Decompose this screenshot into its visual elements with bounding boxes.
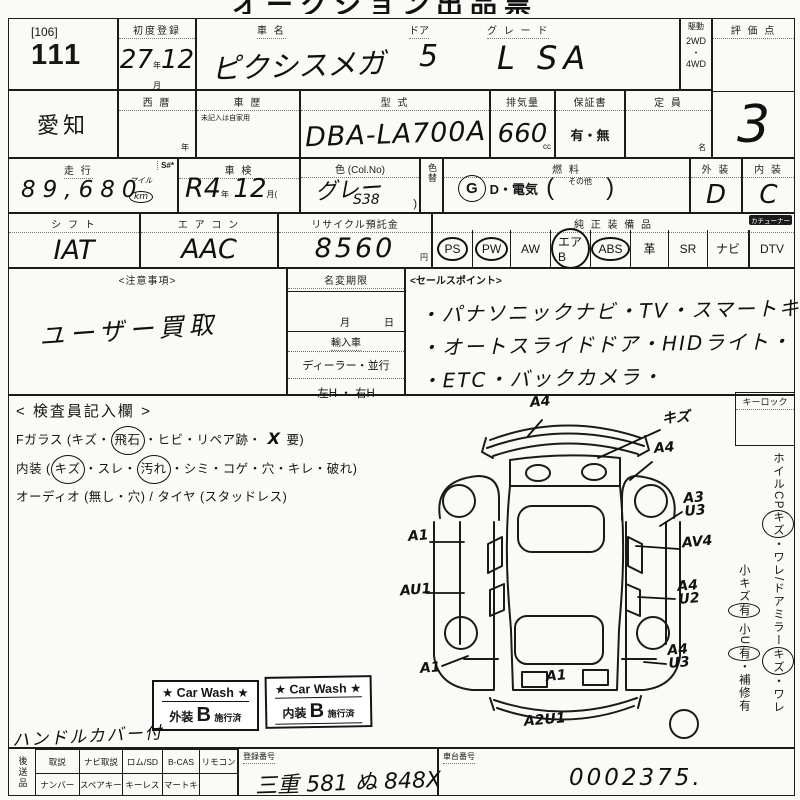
damage-marker: A3 U3 (683, 491, 706, 519)
inspection-expiry-cell: 車 検 R4年 12月( (178, 158, 300, 213)
equipment-7: SR (668, 230, 707, 267)
damage-marker: A2U1 (524, 712, 567, 729)
aircon-cell: エ ア コ ン AAC (140, 213, 278, 268)
drive-type-cell: 駆動 2WD ・ 4WD (680, 18, 712, 90)
first-registration-cell: 初度登録 27年12月 (118, 18, 196, 90)
damage-marker: A1 (419, 661, 441, 676)
small-scratch-note: 小キズ有 小U有・補修有 (728, 452, 760, 752)
damage-marker: A1 (545, 669, 567, 684)
damage-marker: AU1 (399, 583, 431, 599)
model-code: DBA-LA700A (305, 116, 490, 153)
car-name-grade-cell: 車 名 ドア グ レ ー ド ピクシスメガ 5 L SA (196, 18, 680, 90)
equipment-6: 革 (630, 230, 668, 267)
damage-marker: A4 U3 (667, 643, 690, 671)
caution-cell: <注意事項> ユーザー買取 (8, 268, 287, 395)
fuel-cell: 燃 料 G D・電気 ( その他 ) (443, 158, 690, 213)
lot-number: 111 (31, 39, 117, 72)
car-wash-stamp-exterior: ★ Car Wash ★ 外装 B 施行済 (152, 680, 259, 731)
car-name: ピクシスメガ (210, 40, 385, 88)
damage-marker: キズ (661, 411, 690, 426)
color-cell: 色 (Col.No) グレー S38 ) (300, 158, 420, 213)
damage-marker: A1 (407, 529, 429, 544)
lot-cell: [106] 111 (8, 18, 118, 90)
wheel-mirror-note: ホイルCPキズ・ワレ/ドアミラーキズ・ワレ (762, 452, 794, 752)
sales-points-cell: <セールスポイント> ・パナソニックナビ・TV・スマートキー・・オートスライドド… (405, 268, 795, 395)
equipment-5: ABS (590, 230, 630, 267)
prefecture: 愛知 (8, 90, 118, 158)
accessory-cell: スマートキー (162, 773, 200, 795)
grade: L SA (497, 39, 591, 77)
exterior-grade-cell: 外 装 D (690, 158, 742, 213)
auction-score: 3 (713, 93, 794, 157)
tuner-note: カチューナー (749, 215, 792, 225)
shift: IAT (9, 235, 139, 266)
clipped-title: オークション出品票 (232, 0, 568, 14)
warranty-cell: 保証書 有・無 (555, 90, 625, 158)
score-cell: 評 価 点 3 (712, 18, 795, 158)
western-year-cell: 西 暦 年 (118, 90, 196, 158)
first-reg-month: 12 (161, 45, 194, 75)
registration-number-cell: 登録番号 三重 581 ぬ 848X (238, 748, 438, 796)
first-reg-year: 27 (120, 45, 153, 75)
exterior-grade: D (691, 180, 741, 210)
car-damage-diagram: A4キズA4A3 U3A1AV4AU1A4 U2A1A4 U3A1A2U1 (398, 394, 747, 746)
recycle-fee: 8560 (279, 233, 431, 264)
accessory-cell (199, 773, 237, 795)
chassis-number: 0002375. (569, 765, 703, 791)
accessory-cell: スペアキー (79, 773, 123, 795)
equipment-2: PW (472, 230, 510, 267)
interior-grade-cell: 内 装 C (742, 158, 795, 213)
car-history-cell: 車 歴 未記入は自家用 (196, 90, 300, 158)
accessory-cell: ナビ取説 (79, 749, 123, 773)
accessories-table: 後送品 取説ナビ取説ロム/SDB-CASリモコン ナンバースペアキーキーレススマ… (8, 748, 238, 796)
sales-points: ・パナソニックナビ・TV・スマートキー・・オートスライドドア・HIDライト・・E… (419, 291, 800, 397)
equipment-3: AW (510, 230, 550, 267)
accessory-cell: B-CAS (162, 749, 200, 773)
audio-tire-line: オーディオ (無し・穴) / タイヤ (スタッドレス) (16, 484, 396, 511)
accessories-label: 後送品 (9, 749, 35, 795)
color-change-cell: 色替 (420, 158, 443, 213)
key-lock-box: キーロック (735, 392, 795, 446)
equipment-grid: 純 正 装 備 品 カチューナー PSPWAWエアBABS革SRナビDTV (432, 213, 795, 268)
lot-bracket: [106] (31, 25, 117, 39)
front-glass-line: Fガラス (キズ・飛石・ヒビ・リペア跡・ X 要) (16, 425, 396, 455)
equipment-9: DTV (748, 230, 794, 267)
interior-line: 内装 (キズ・スレ・汚れ・シミ・コゲ・穴・キレ・破れ) (16, 455, 396, 484)
km-circled: km (129, 191, 153, 203)
mileage-cell: 走 行 S#* 89,680 マイル km (8, 158, 178, 213)
caution-note: ユーザー買取 (38, 305, 220, 353)
inspector-notes: < 検査員記入欄 > Fガラス (キズ・飛石・ヒビ・リペア跡・ X 要) 内装 … (16, 400, 396, 511)
accessory-cell: リモコン (199, 749, 237, 773)
sales-point-line: ・オートスライドドア・HIDライト・ (420, 324, 800, 364)
equipment-8: ナビ (707, 230, 748, 267)
damage-marker: A4 U2 (677, 579, 700, 607)
damage-marker: A4 (653, 441, 675, 456)
accessory-cell: 取説 (35, 749, 79, 773)
right-margin-notes: ホイルCPキズ・ワレ/ドアミラーキズ・ワレ 小キズ有 小U有・補修有 (740, 452, 794, 752)
interior-grade: C (743, 180, 794, 210)
registration-number: 三重 581 ぬ 848X (254, 762, 441, 800)
auction-sheet: オークション出品票 [106] 111 初度登録 27年12月 車 名 ドア グ… (0, 0, 800, 800)
equipment-1: PS (433, 230, 472, 267)
door-count: 5 (419, 39, 438, 74)
color-number: S38 (353, 192, 380, 208)
model-code-cell: 型 式 DBA-LA700A (300, 90, 490, 158)
damage-marker: A4 (529, 395, 551, 410)
shift-cell: シ フ ト IAT (8, 213, 140, 268)
displacement-cell: 排気量 660 cc (490, 90, 555, 158)
damage-marker: AV4 (681, 535, 712, 551)
accessory-cell: キーレス (122, 773, 162, 795)
chassis-number-cell: 車台番号 0002375. (438, 748, 795, 796)
equipment-4: エアB (550, 230, 590, 267)
recycle-fee-cell: リサイクル預託金 8560 円 (278, 213, 432, 268)
car-wash-stamp-interior: ★ Car Wash ★ 内装 B 施行済 (265, 675, 372, 729)
accessory-cell: ナンバー (35, 773, 79, 795)
capacity-cell: 定 員 名 (625, 90, 712, 158)
fuel-gasoline-circled: G (458, 175, 486, 202)
aircon: AAC (141, 234, 277, 265)
accessory-cell: ロム/SD (122, 749, 162, 773)
mileage: 89,680 (21, 177, 143, 203)
rename-deadline-cell: 名変期限 月日 輸入車 ディーラー・並行 左H ・ 右H (287, 268, 405, 395)
